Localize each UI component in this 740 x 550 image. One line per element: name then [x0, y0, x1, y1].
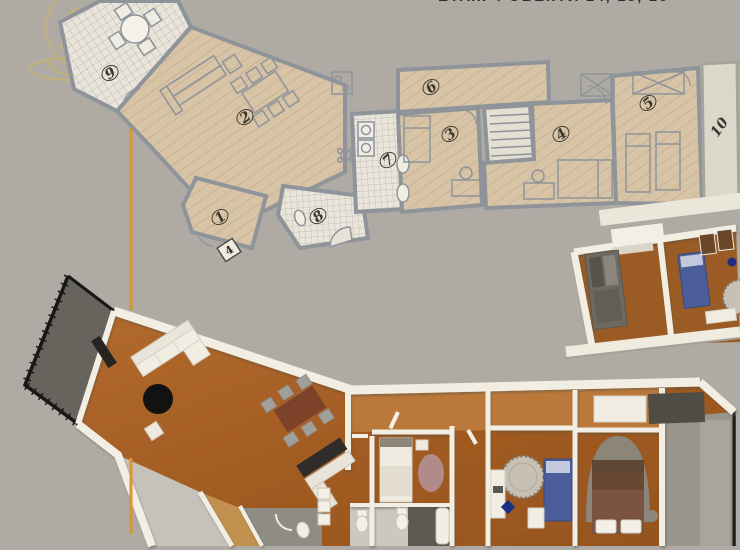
fragment-navy-dot: [728, 258, 737, 267]
plan-2d: 9 2 1 8 7 6 3 4 5 10 4: [60, 0, 739, 262]
dark-cabinet-3d: [648, 392, 705, 424]
white-wardrobe-3d: [594, 396, 646, 422]
floorplan-page: ЕТАЖ 4 ОБЕКТИ 14, 15, 16: [0, 0, 740, 550]
washer-2d: [358, 122, 374, 138]
orange-guide-line-lower: [130, 458, 133, 534]
floorplan-graphic: 9 2 1 8 7 6 3 4 5 10 4: [0, 0, 740, 550]
alphabet-rug: [502, 456, 544, 498]
orange-guide-line-upper: [130, 112, 133, 310]
plan-3d-fragment: [566, 192, 740, 358]
round-rug-black: [143, 384, 173, 414]
bathtub-3d: [436, 508, 449, 544]
desk-3d: [491, 470, 505, 518]
round-rug-pink: [418, 454, 444, 492]
toilet-2d: [397, 155, 409, 173]
balcony-right-inner: [700, 420, 730, 546]
